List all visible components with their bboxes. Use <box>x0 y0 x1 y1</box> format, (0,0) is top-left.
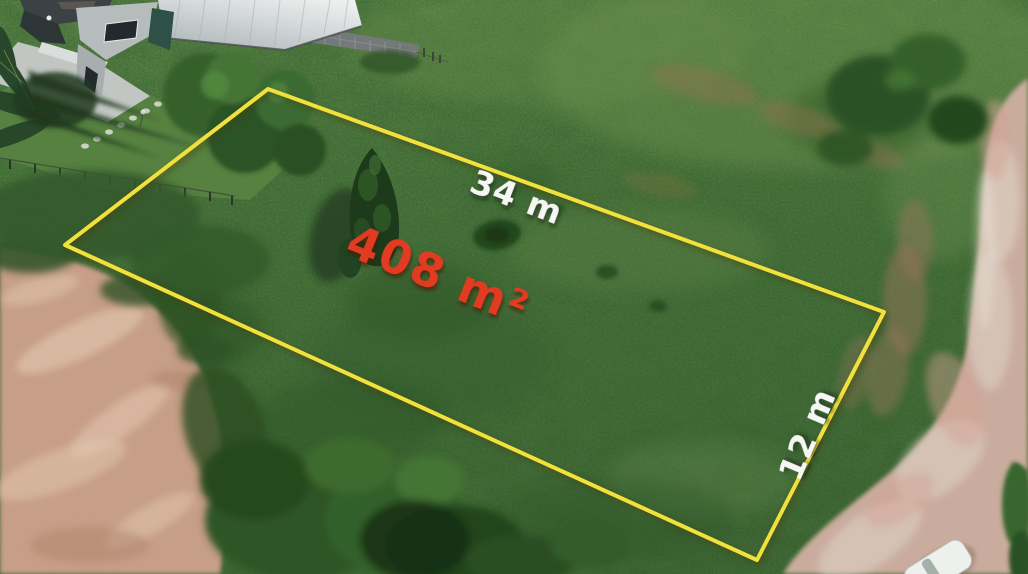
ac-unit <box>47 16 52 21</box>
house-window <box>104 20 138 42</box>
aerial-photo-land-plot: 34 m 408 m² 12 m <box>0 0 1028 574</box>
